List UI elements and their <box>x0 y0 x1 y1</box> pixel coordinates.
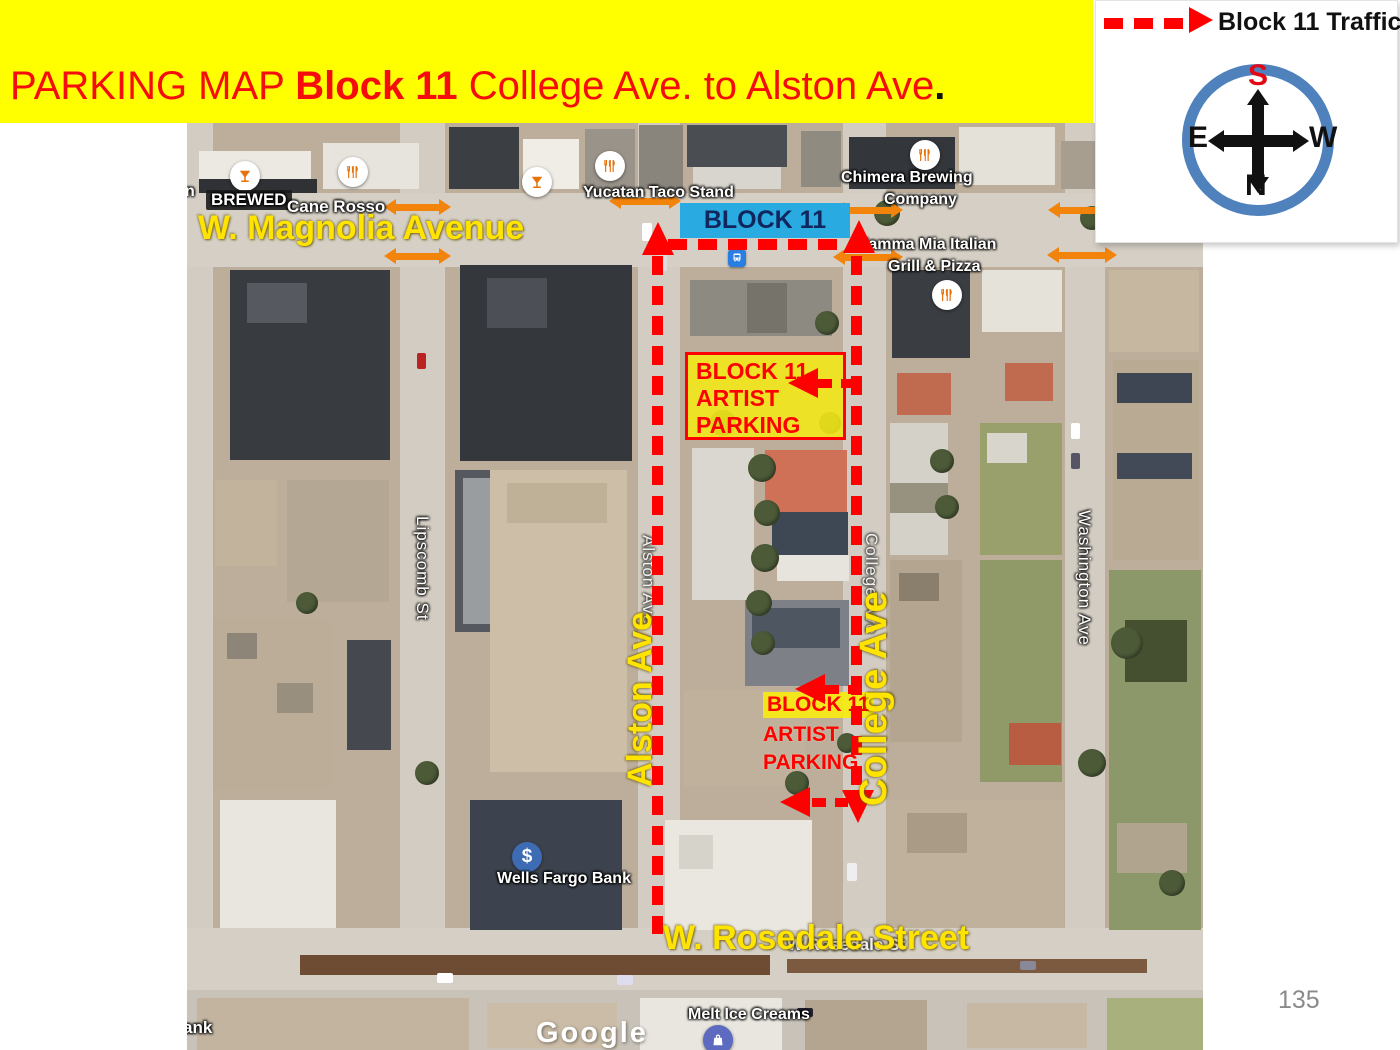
map-building <box>892 270 970 358</box>
map-car <box>1020 961 1036 970</box>
map-car <box>417 353 426 369</box>
map-tree <box>751 631 775 655</box>
map-car <box>1071 453 1080 469</box>
map-building <box>765 450 847 512</box>
map-car <box>437 973 453 983</box>
poi-label-mamma-2: Grill & Pizza <box>888 258 980 276</box>
parking-arrow-dash <box>818 379 858 388</box>
map-tree <box>415 761 439 785</box>
map-tree <box>746 590 772 616</box>
map-building <box>692 448 754 600</box>
map-building <box>287 480 389 602</box>
map-building <box>959 127 1055 185</box>
map-tree <box>815 311 839 335</box>
page-title: PARKING MAP Block 11 College Ave. to Als… <box>10 64 945 109</box>
parking-arrowhead-left <box>795 674 825 704</box>
block11-banner: BLOCK 11 <box>680 203 850 238</box>
poi-label-wells-fargo: Wells Fargo Bank <box>497 870 631 888</box>
title-banner: PARKING MAP Block 11 College Ave. to Als… <box>0 0 1093 123</box>
google-watermark: Google <box>536 1017 648 1050</box>
parking-line: PARKING <box>696 412 843 439</box>
compass-horizontal-bar <box>1220 135 1297 147</box>
map-car <box>847 863 857 881</box>
legend-dash-line <box>1104 18 1188 29</box>
map-building <box>679 835 713 869</box>
map-building <box>777 555 849 581</box>
map-building <box>220 800 336 928</box>
slide: $ BREWED Cane Rosso Yucatan Taco Stand C… <box>0 0 1400 1050</box>
map-building <box>247 283 307 323</box>
compass-letter-e: E <box>1188 121 1208 155</box>
map-building <box>987 433 1027 463</box>
map-building <box>1009 723 1061 765</box>
orange-traffic-arrow <box>394 253 441 260</box>
street-label-rosedale: W. Rosedale Street <box>663 919 969 958</box>
title-prefix: PARKING MAP <box>10 64 295 108</box>
poi-label-melt: Melt Ice Creams <box>688 1006 810 1024</box>
legend-label: Block 11 Traffic <box>1218 8 1400 37</box>
legend-box: Block 11 Traffic S E W N <box>1095 0 1398 243</box>
map-car <box>1071 423 1080 439</box>
map-building <box>215 480 277 566</box>
title-period: . <box>934 64 945 108</box>
map-building <box>899 573 939 601</box>
poi-label-chimera-1: Chimera Brewing <box>841 169 973 187</box>
map-building <box>907 813 967 853</box>
map-building <box>1117 823 1187 873</box>
map-building <box>982 270 1062 332</box>
parking-arrowhead-left <box>780 787 810 817</box>
map-building <box>787 959 1147 973</box>
map-building <box>347 640 391 750</box>
map-tree <box>296 592 318 614</box>
restaurant-icon <box>595 151 625 181</box>
compass-letter-s: S <box>1248 59 1268 93</box>
orange-traffic-arrow <box>1057 252 1107 259</box>
title-block11: Block 11 <box>295 64 457 108</box>
compass-letter-w: W <box>1309 121 1337 155</box>
map-building <box>1117 453 1192 479</box>
artist-parking-upper: BLOCK 11 ARTIST PARKING <box>685 352 846 440</box>
map-building <box>639 125 683 189</box>
map-tree <box>751 544 779 572</box>
artist-parking-lower-line3: PARKING <box>763 751 858 775</box>
map-building <box>1117 373 1192 403</box>
satellite-map: $ BREWED Cane Rosso Yucatan Taco Stand C… <box>187 123 1203 1050</box>
map-tree <box>1159 870 1185 896</box>
parking-line: ARTIST <box>696 385 843 412</box>
legend-arrowhead-icon <box>1189 7 1213 33</box>
cocktail-icon <box>522 167 552 197</box>
parking-arrowhead-left <box>788 368 818 398</box>
map-building <box>300 955 770 975</box>
restaurant-icon <box>910 140 940 170</box>
route-dash-alston <box>652 256 663 934</box>
map-building <box>747 283 787 333</box>
map-tree <box>748 454 776 482</box>
map-building <box>197 998 469 1050</box>
map-building <box>772 512 848 556</box>
street-label-magnolia: W. Magnolia Avenue <box>198 209 524 248</box>
bus-transit-icon <box>728 249 746 267</box>
parking-arrow-dash <box>812 798 848 807</box>
map-building <box>967 1003 1087 1048</box>
map-building <box>1107 998 1203 1050</box>
dollar-icon: $ <box>512 842 542 872</box>
orange-traffic-arrow <box>1058 207 1098 214</box>
poi-label-cutoff-n: n <box>187 183 195 201</box>
poi-label-bank-cutoff: ank <box>187 1018 212 1038</box>
map-tree <box>1111 627 1143 659</box>
map-building <box>805 1000 927 1050</box>
map-building <box>277 683 313 713</box>
map-tree <box>935 495 959 519</box>
poi-label-mamma-1: Mamma Mia Italian <box>855 236 996 254</box>
poi-label-yucatan: Yucatan Taco Stand <box>583 184 734 202</box>
map-building <box>507 483 607 523</box>
map-building <box>487 278 547 328</box>
title-suffix: College Ave. to Alston Ave <box>458 64 935 108</box>
route-arrowhead-up <box>843 220 875 253</box>
map-tree <box>1078 749 1106 777</box>
map-building <box>449 127 519 189</box>
restaurant-icon <box>338 157 368 187</box>
page-number: 135 <box>1278 986 1320 1015</box>
street-label-washington: Washington Ave <box>1074 510 1094 646</box>
map-building <box>323 143 419 189</box>
map-building <box>1109 270 1199 352</box>
shopping-bag-icon <box>703 1025 733 1050</box>
compass-letter-n: N <box>1245 169 1267 203</box>
map-building <box>801 131 841 187</box>
route-dash-top <box>668 239 848 250</box>
compass-arrow-left <box>1208 130 1224 152</box>
route-arrowhead-up <box>642 222 674 255</box>
map-building <box>470 800 622 930</box>
street-label-alston: Alston Ave <box>621 612 660 787</box>
poi-label-brewed: BREWED <box>206 190 292 210</box>
poi-label-chimera-2: Company <box>884 191 957 209</box>
map-building <box>227 633 257 659</box>
street-label-lipscomb: Lipscomb St <box>412 516 432 621</box>
map-car <box>617 975 633 985</box>
compass-arrow-right <box>1293 130 1309 152</box>
map-building <box>1005 363 1053 401</box>
street-label-college: College Ave <box>853 591 896 806</box>
map-building <box>687 125 787 167</box>
map-building <box>897 373 951 415</box>
artist-parking-lower-line2: ARTIST <box>763 723 839 747</box>
restaurant-icon <box>932 280 962 310</box>
cocktail-icon <box>230 161 260 191</box>
map-tree <box>754 500 780 526</box>
map-tree <box>930 449 954 473</box>
